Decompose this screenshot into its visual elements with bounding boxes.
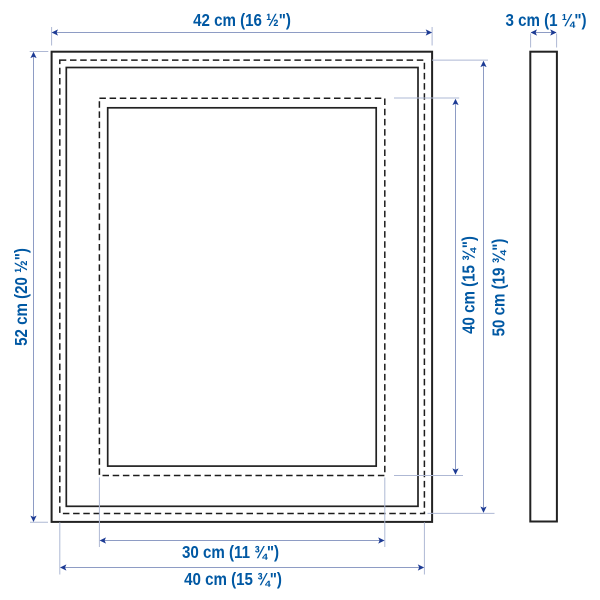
svg-text:42 cm (16 ½"): 42 cm (16 ½")	[193, 10, 291, 31]
svg-text:40 cm (15 ¾"): 40 cm (15 ¾")	[184, 569, 282, 590]
svg-text:30 cm (11 ¾"): 30 cm (11 ¾")	[182, 542, 279, 563]
svg-text:52 cm (20 ½"): 52 cm (20 ½")	[11, 248, 32, 346]
svg-text:50 cm (19 ¾"): 50 cm (19 ¾")	[488, 239, 509, 337]
svg-text:40 cm (15 ¾"): 40 cm (15 ¾")	[458, 236, 479, 334]
svg-text:3 cm (1 ¼"): 3 cm (1 ¼")	[505, 10, 586, 31]
